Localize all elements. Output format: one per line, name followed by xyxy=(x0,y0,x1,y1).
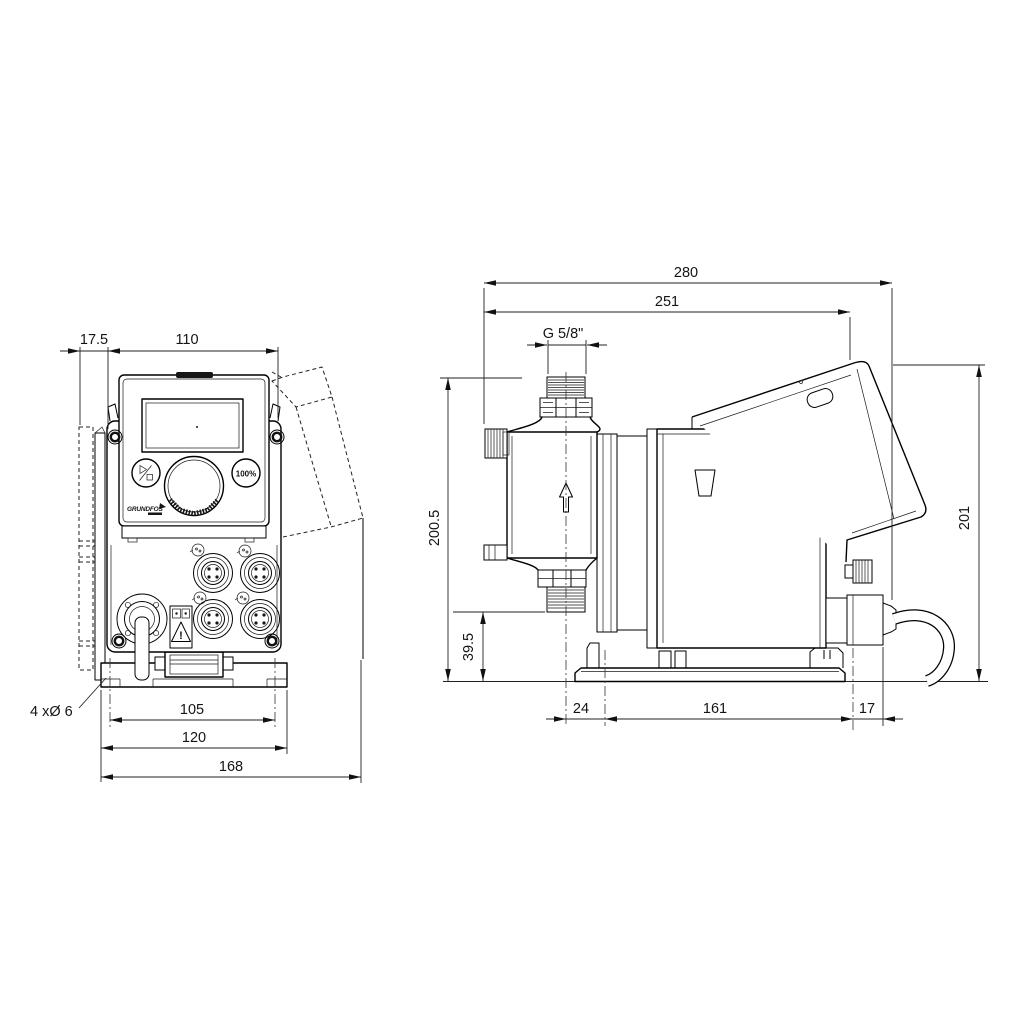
wall-plate-hidden xyxy=(79,427,105,680)
rear-thread-connector xyxy=(853,560,872,583)
click-wheel[interactable] xyxy=(165,457,224,516)
brand-text: GRUNDFOS xyxy=(127,506,163,513)
dim-base-rear: 17 xyxy=(859,701,875,717)
dim-base-front: 24 xyxy=(573,701,589,717)
dim-hole-spacing: 105 xyxy=(180,702,204,718)
drain-nozzle xyxy=(484,545,507,560)
warning-exclamation: ! xyxy=(179,630,183,642)
base-plate-side xyxy=(575,668,845,682)
dimensional-drawing: 100% GRUNDFOS xyxy=(0,0,1024,1024)
front-view: 100% GRUNDFOS xyxy=(30,332,363,783)
full-capacity-label: 100% xyxy=(236,470,256,479)
control-panel: 100% GRUNDFOS xyxy=(119,372,269,542)
side-view: 280 251 G 5/8" 200.5 39.5 201 xyxy=(427,265,988,730)
cable-gland-side xyxy=(847,595,896,645)
rear-connections xyxy=(826,560,949,681)
start-stop-button[interactable] xyxy=(132,459,160,487)
head-flange xyxy=(597,434,647,632)
suction-nut xyxy=(538,570,586,587)
dim-width: 110 xyxy=(175,332,198,348)
panel-top-tab xyxy=(176,372,213,378)
panel-bottom-strip xyxy=(122,526,266,538)
cover-bracket xyxy=(272,367,363,659)
dim-plate-width: 120 xyxy=(182,730,206,746)
dim-cover-height: 201 xyxy=(957,506,973,530)
note-mounting-holes: 4 xØ 6 xyxy=(30,704,73,720)
dim-offset: 17.5 xyxy=(80,332,108,348)
dim-total-width: 168 xyxy=(219,759,243,775)
dim-body-depth: 251 xyxy=(655,294,679,310)
dim-valve-height: 39.5 xyxy=(461,633,477,661)
mains-cable-front xyxy=(135,617,149,680)
full-capacity-button[interactable]: 100% xyxy=(232,459,260,487)
dim-thread: G 5/8" xyxy=(543,326,584,342)
dim-base-length: 161 xyxy=(703,701,727,717)
dim-height: 200.5 xyxy=(427,510,443,546)
dim-total-depth: 280 xyxy=(674,265,698,281)
deaeration-valve[interactable] xyxy=(485,429,509,458)
